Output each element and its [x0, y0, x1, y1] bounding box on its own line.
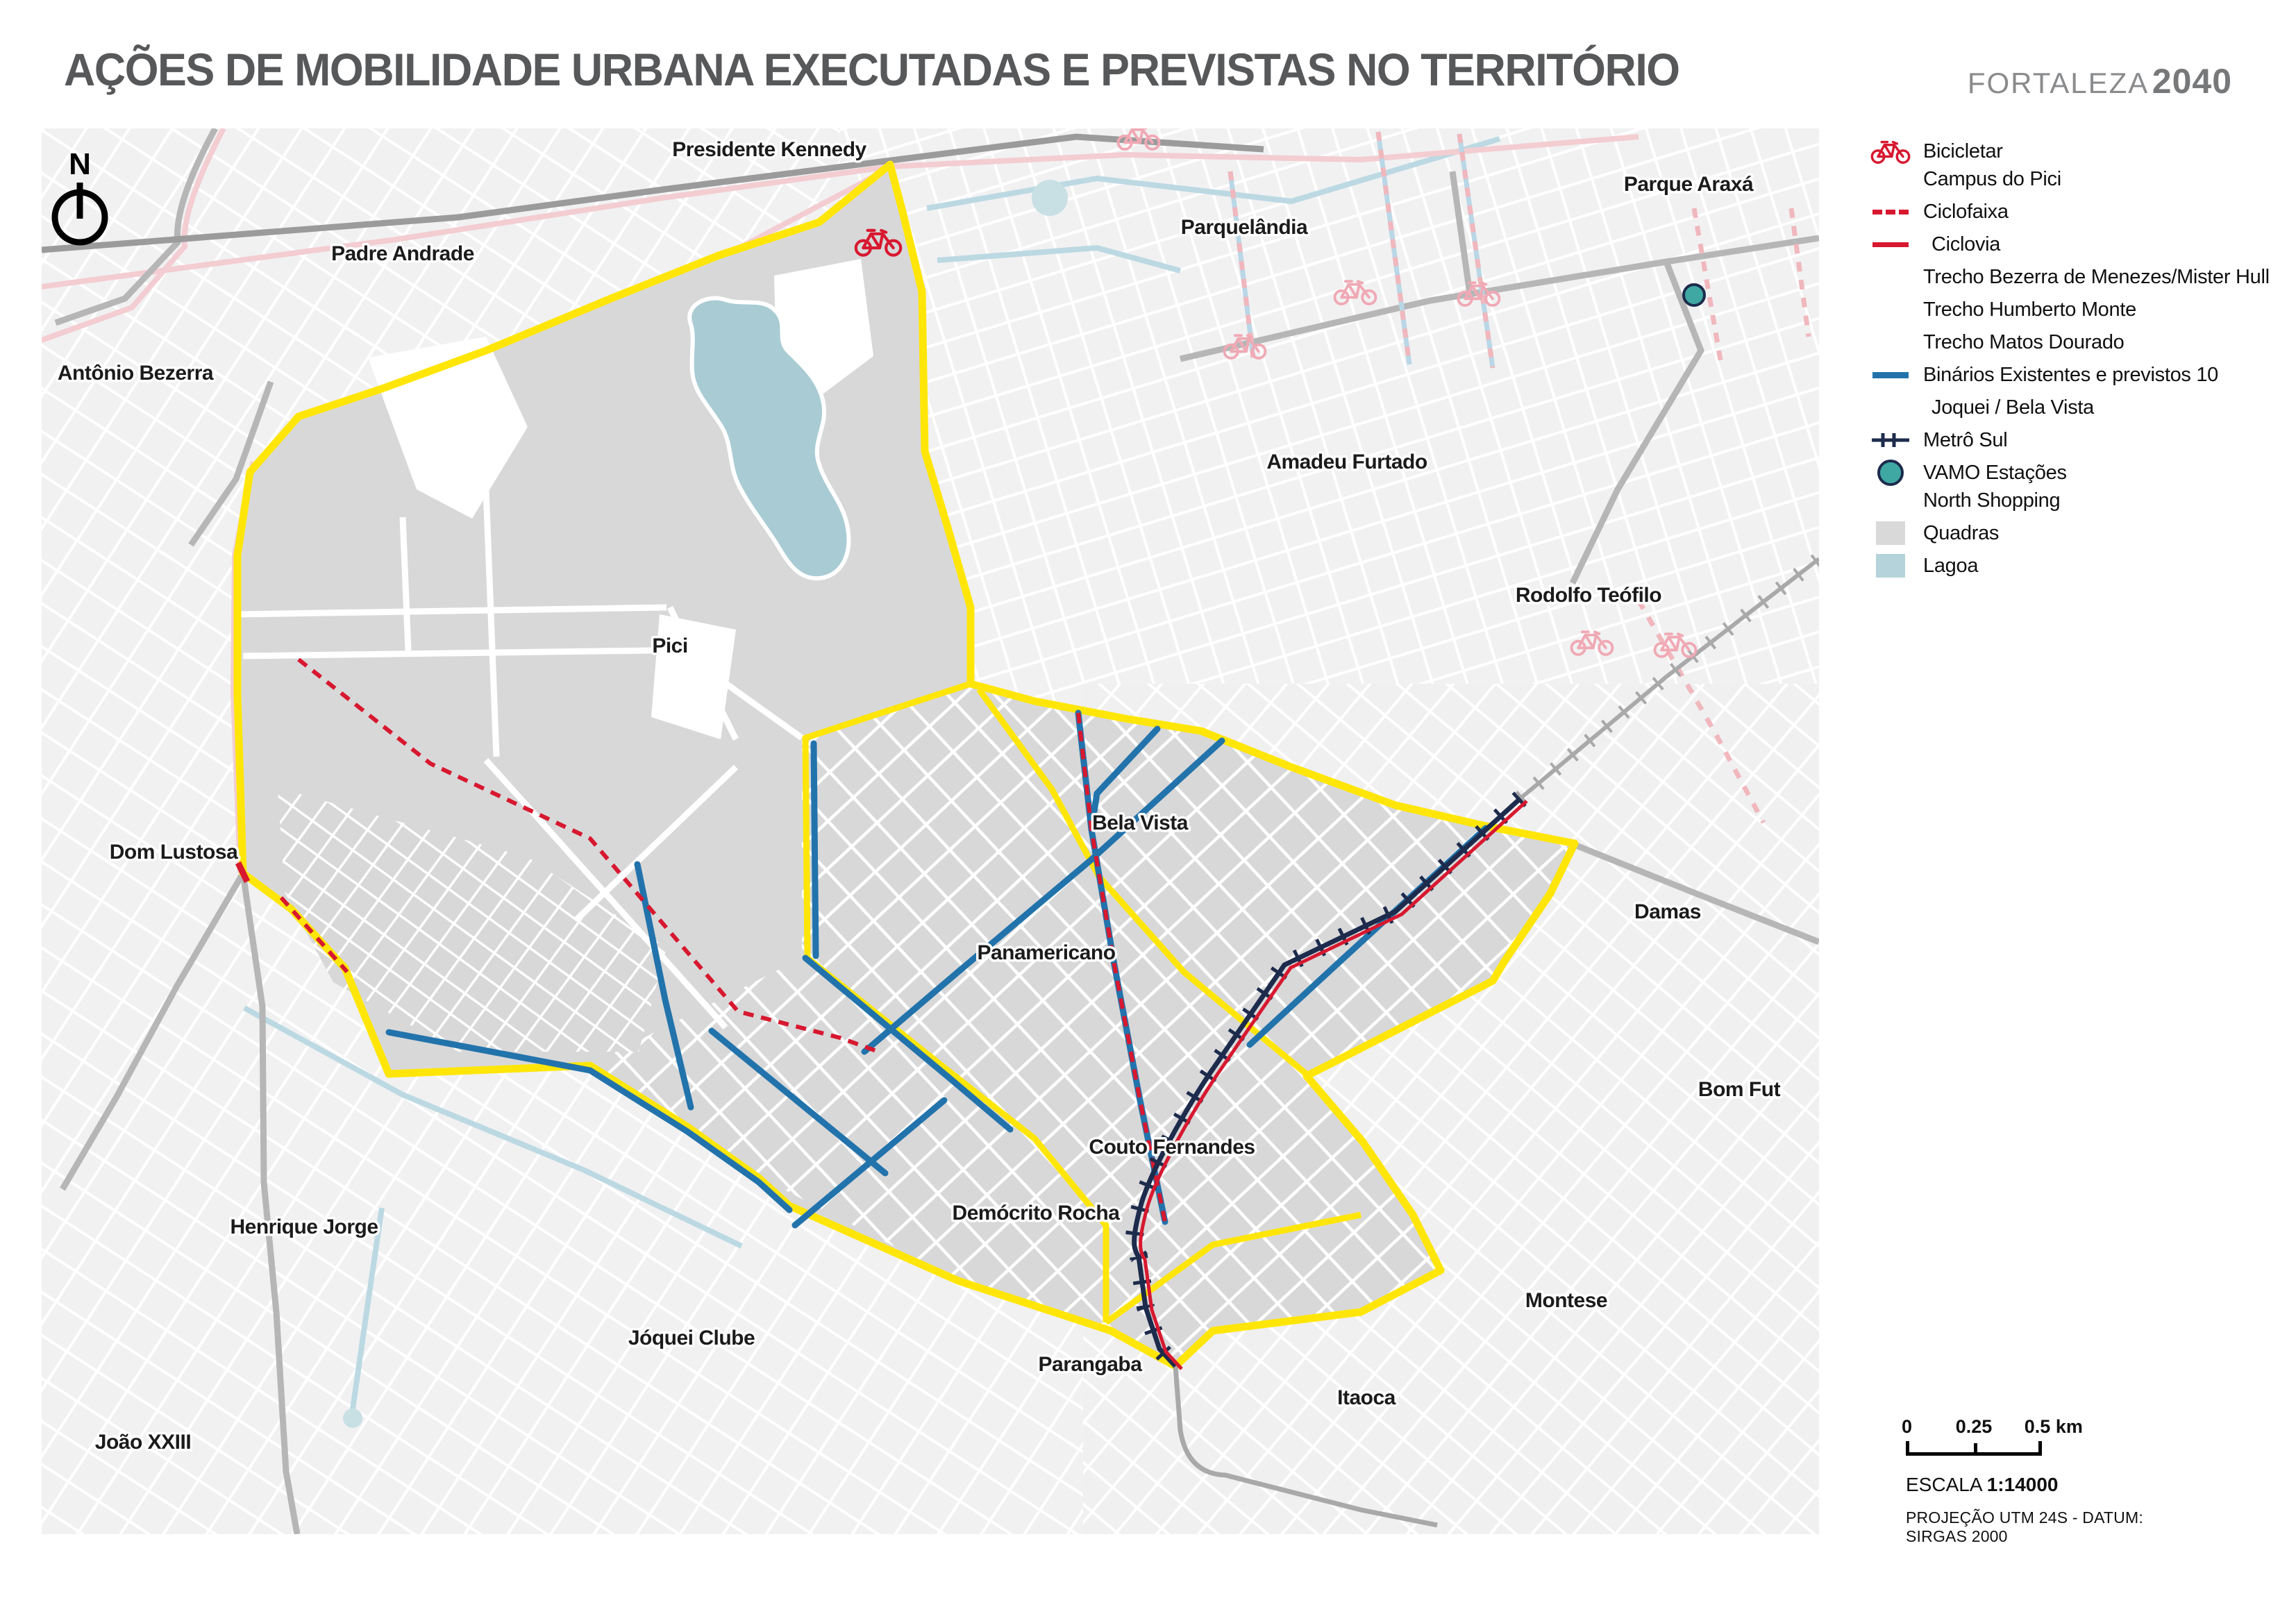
ciclovia-swatch-icon [1872, 242, 1909, 247]
map-label-joao-xxiii: João XXIII [95, 1431, 191, 1454]
legend-label-ciclofaixa: Ciclofaixa [1923, 198, 2009, 226]
page-title: AÇÕES DE MOBILIDADE URBANA EXECUTADAS E … [64, 43, 1679, 96]
scalebar [1906, 1440, 2042, 1456]
legend-item-lagoa: Lagoa [1866, 552, 2283, 580]
poster: AÇÕES DE MOBILIDADE URBANA EXECUTADAS E … [0, 0, 2296, 1623]
map-label-damas: Damas [1634, 900, 1701, 923]
map-label-amadeu-furtado: Amadeu Furtado [1266, 451, 1427, 473]
legend-item-ciclovia: Ciclovia [1866, 230, 2283, 258]
map-label-bom-fut: Bom Fut [1698, 1078, 1781, 1101]
map-label-parquelandia: Parquelândia [1181, 216, 1308, 239]
scalebar-tick-025: 0.25 [1956, 1416, 1993, 1438]
brand-name: FORTALEZA [1968, 67, 2150, 99]
legend-label2-bicicletar: Campus do Pici [1923, 165, 2061, 193]
vamo-stations-layer [1684, 285, 1704, 305]
legend-item-vamo: VAMO EstaçõesNorth Shopping [1866, 459, 2283, 514]
map-label-pici: Pici [652, 634, 687, 657]
metro-swatch-icon [1870, 431, 1911, 449]
map-label-parque-araxa: Parque Araxá [1624, 173, 1754, 196]
scalebar-tick-0: 0 [1902, 1416, 1912, 1438]
legend-item-metro-sul: Metrô Sul [1866, 426, 2283, 454]
map-label-parangaba: Parangaba [1039, 1353, 1143, 1376]
legend-item-binarios: Binários Existentes e previstos 10 [1866, 361, 2283, 389]
legend-label-binarios: Binários Existentes e previstos 10 [1923, 361, 2218, 389]
map-label-panamericano: Panamericano [977, 941, 1115, 964]
map-label-dom-lustosa: Dom Lustosa [110, 841, 238, 864]
escala-label: ESCALA [1906, 1474, 1981, 1495]
legend-label-bicicletar: BicicletarCampus do Pici [1923, 137, 2061, 193]
legend-label-quadras: Quadras [1923, 519, 1999, 547]
small-lagoon [343, 1408, 362, 1428]
map-label-henrique-jorge: Henrique Jorge [230, 1216, 378, 1238]
projection-text: PROJEÇÃO UTM 24S - DATUM: SIRGAS 2000 [1906, 1508, 2197, 1546]
map-label-antonio-bezerra: Antônio Bezerra [58, 362, 214, 385]
legend-item-joquei-bela: Joquei / Bela Vista [1866, 394, 2283, 421]
legend-item-trecho-bezerra: Trecho Bezerra de Menezes/Mister Hull [1866, 263, 2283, 291]
legend: BicicletarCampus do PiciCiclofaixaCiclov… [1866, 137, 2283, 580]
legend-label-metro-sul: Metrô Sul [1923, 426, 2007, 454]
vamo-swatch-icon [1877, 460, 1904, 486]
map-label-joquei-clube: Jóquei Clube [628, 1327, 755, 1349]
map: Presidente KennedyParque AraxáPadre Andr… [42, 128, 1819, 1534]
north-label: N [69, 147, 91, 181]
legend-label2-vamo: North Shopping [1923, 487, 2067, 514]
bicycle-icon [1870, 138, 1911, 165]
map-canvas: Presidente KennedyParque AraxáPadre Andr… [42, 128, 1819, 1534]
legend-label-lagoa: Lagoa [1923, 552, 1978, 580]
legend-item-ciclofaixa: Ciclofaixa [1866, 198, 2283, 226]
map-label-montese: Montese [1525, 1289, 1607, 1312]
brand-logo: FORTALEZA 2040 [1968, 61, 2232, 101]
map-label-bela-vista: Bela Vista [1092, 811, 1189, 834]
legend-item-trecho-humberto: Trecho Humberto Monte [1866, 296, 2283, 323]
scalebar-labels: 0 0.25 0.5 km [1906, 1416, 2042, 1440]
ciclofaixa-swatch-icon [1872, 210, 1909, 215]
vamo-station-icon [1684, 285, 1704, 305]
legend-item-bicicletar: BicicletarCampus do Pici [1866, 137, 2283, 193]
pond [1032, 180, 1068, 216]
lagoa-swatch-icon [1876, 554, 1905, 578]
scalebar-tick-05: 0.5 km [2025, 1416, 2083, 1438]
map-label-padre-andrade: Padre Andrade [331, 242, 474, 265]
map-label-presidente-kennedy: Presidente Kennedy [672, 138, 866, 161]
legend-label-trecho-bezerra: Trecho Bezerra de Menezes/Mister Hull [1923, 263, 2270, 291]
map-label-rodolfo-teofilo: Rodolfo Teófilo [1516, 584, 1661, 607]
legend-label-vamo: VAMO EstaçõesNorth Shopping [1923, 459, 2067, 514]
escala-value: 1:14000 [1987, 1474, 2059, 1495]
map-label-couto-fernandes: Couto Fernandes [1089, 1136, 1255, 1159]
binario-swatch-icon [1872, 372, 1909, 378]
map-label-itaoca: Itaoca [1337, 1386, 1396, 1409]
scale-text: ESCALA 1:14000 [1906, 1474, 2197, 1496]
legend-label-trecho-humberto: Trecho Humberto Monte [1923, 296, 2136, 323]
legend-item-quadras: Quadras [1866, 519, 2283, 547]
map-label-democrito-rocha: Demócrito Rocha [953, 1202, 1121, 1225]
legend-item-trecho-matos: Trecho Matos Dourado [1866, 328, 2283, 356]
legend-label-ciclovia: Ciclovia [1923, 230, 2000, 258]
brand-year: 2040 [2152, 62, 2232, 101]
quadras-swatch-icon [1876, 521, 1905, 545]
scale-block: 0 0.25 0.5 km ESCALA 1:14000 PROJEÇÃO UT… [1906, 1416, 2197, 1546]
legend-label-trecho-matos: Trecho Matos Dourado [1923, 328, 2125, 356]
legend-label-joquei-bela: Joquei / Bela Vista [1923, 394, 2094, 421]
